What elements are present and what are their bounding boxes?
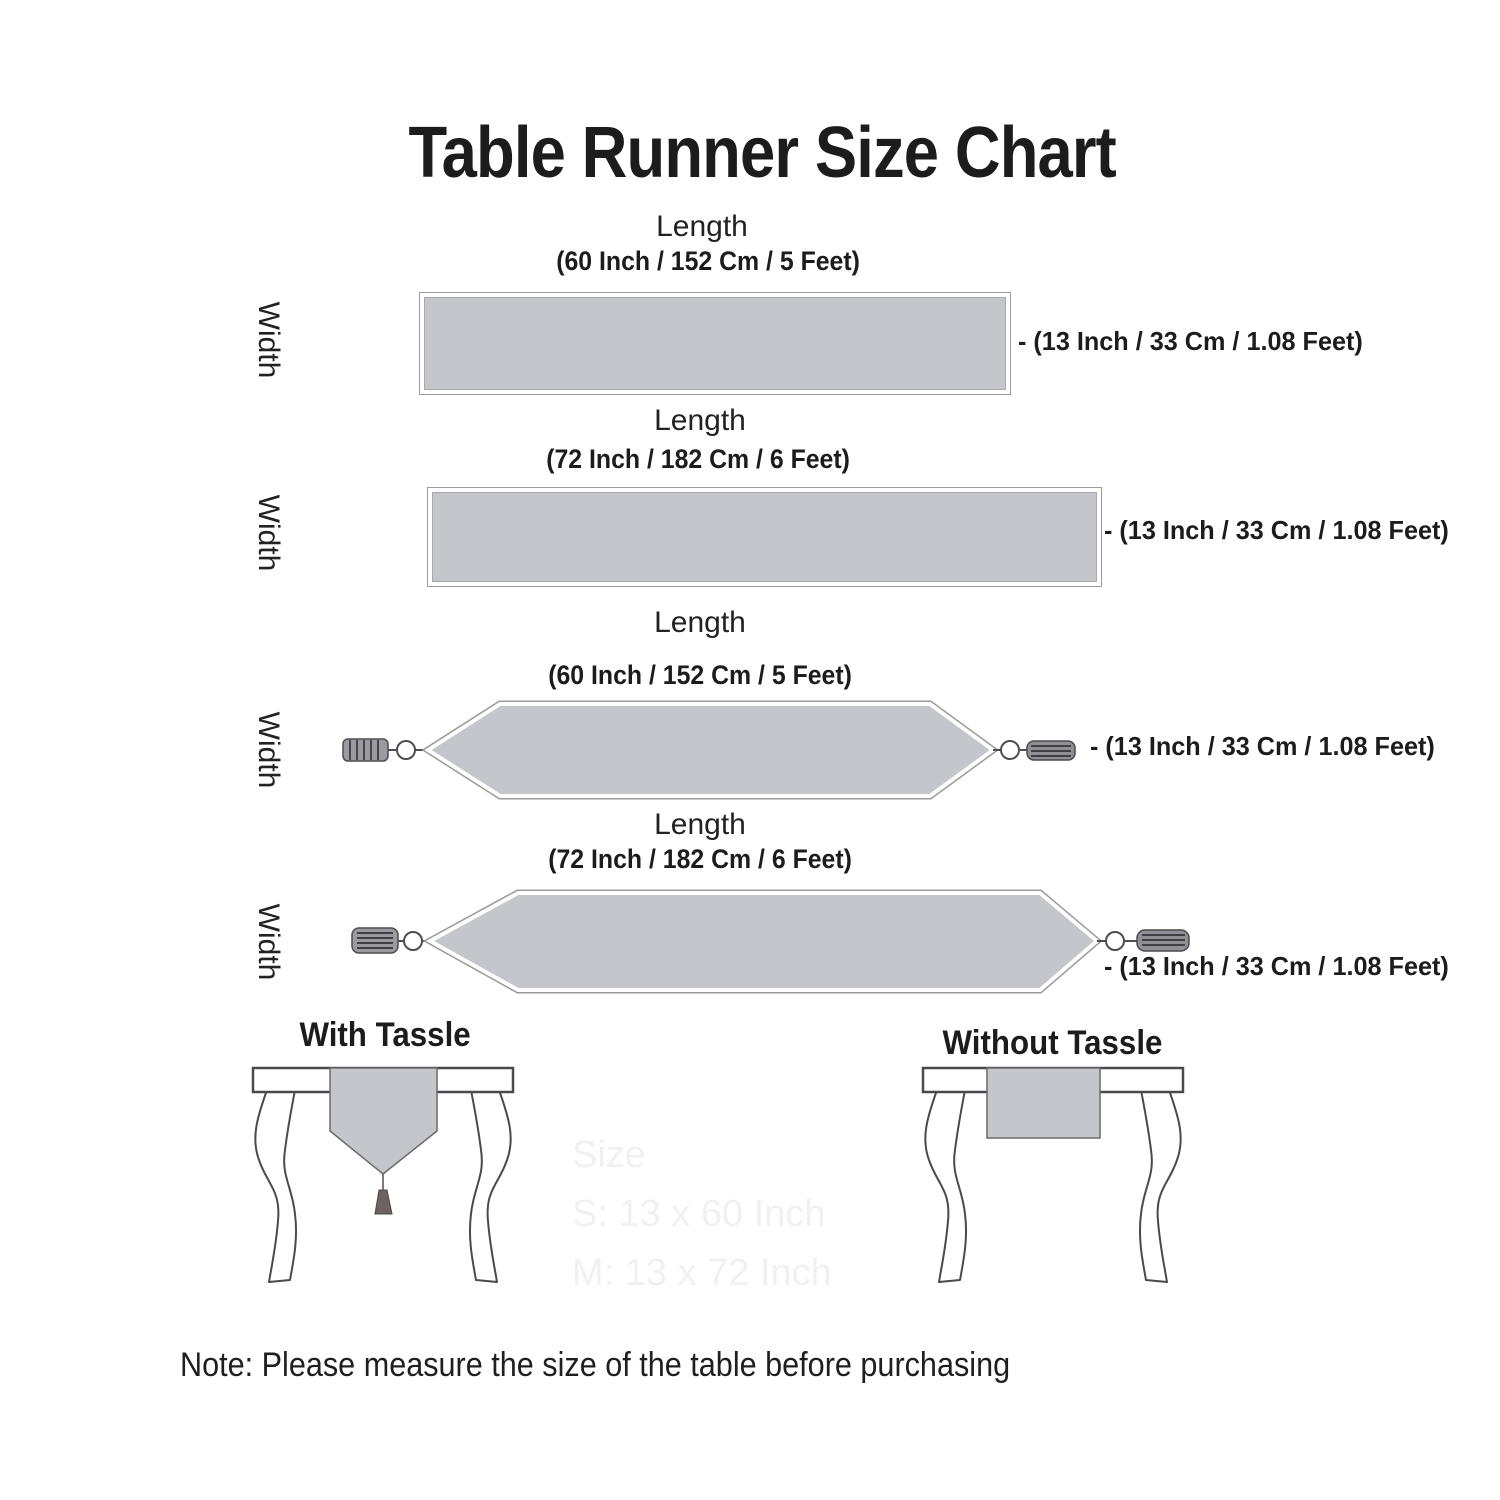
runner4-width-label: Width <box>222 896 314 988</box>
runner2-width-value: - (13 Inch / 33 Cm / 1.08 Feet) <box>1104 515 1459 546</box>
size-chart: Table Runner Size Chart Length (60 Inch … <box>0 0 1500 1500</box>
runner1-length-label: Length <box>502 210 902 244</box>
runner3-length-value: (60 Inch / 152 Cm / 5 Feet) <box>480 660 920 691</box>
runner1-width-value: - (13 Inch / 33 Cm / 1.08 Feet) <box>1018 326 1373 357</box>
runner3-left-tassel-icon <box>343 739 428 761</box>
page-title: Table Runner Size Chart <box>0 112 1500 194</box>
runner1-length-value: (60 Inch / 152 Cm / 5 Feet) <box>488 246 928 277</box>
runner4-shape <box>340 883 1195 1001</box>
runner3-right-tassel-icon <box>993 741 1075 760</box>
purchase-note: Note: Please measure the size of the tab… <box>180 1346 1102 1385</box>
runner3-shape <box>330 693 1090 808</box>
with-tassle-table-illustration <box>245 1056 521 1298</box>
with-tassle-caption: With Tassle <box>245 1016 525 1055</box>
runner4-width-value: - (13 Inch / 33 Cm / 1.08 Feet) <box>1104 951 1459 982</box>
watermark-text: Size S: 13 x 60 Inch M: 13 x 72 Inch <box>572 1126 832 1303</box>
runner3-width-label: Width <box>222 704 314 796</box>
runner4-length-label: Length <box>500 808 900 842</box>
runner2-length-value: (72 Inch / 182 Cm / 6 Feet) <box>478 444 918 475</box>
runner-with-tassel-icon <box>330 1068 437 1214</box>
runner3-length-label: Length <box>500 606 900 640</box>
runner4-right-tassel-icon <box>1097 930 1189 951</box>
runner1-width-label: Width <box>222 294 314 386</box>
runner1-shape <box>420 293 1010 394</box>
runner2-length-label: Length <box>500 404 900 438</box>
runner4-left-tassel-icon <box>352 928 430 953</box>
runner2-width-label: Width <box>222 487 314 579</box>
runner2-shape <box>428 488 1101 586</box>
without-tassle-table-illustration <box>915 1056 1191 1298</box>
runner3-width-value: - (13 Inch / 33 Cm / 1.08 Feet) <box>1090 731 1445 762</box>
runner4-length-value: (72 Inch / 182 Cm / 6 Feet) <box>480 844 920 875</box>
runner-plain-icon <box>987 1068 1100 1138</box>
